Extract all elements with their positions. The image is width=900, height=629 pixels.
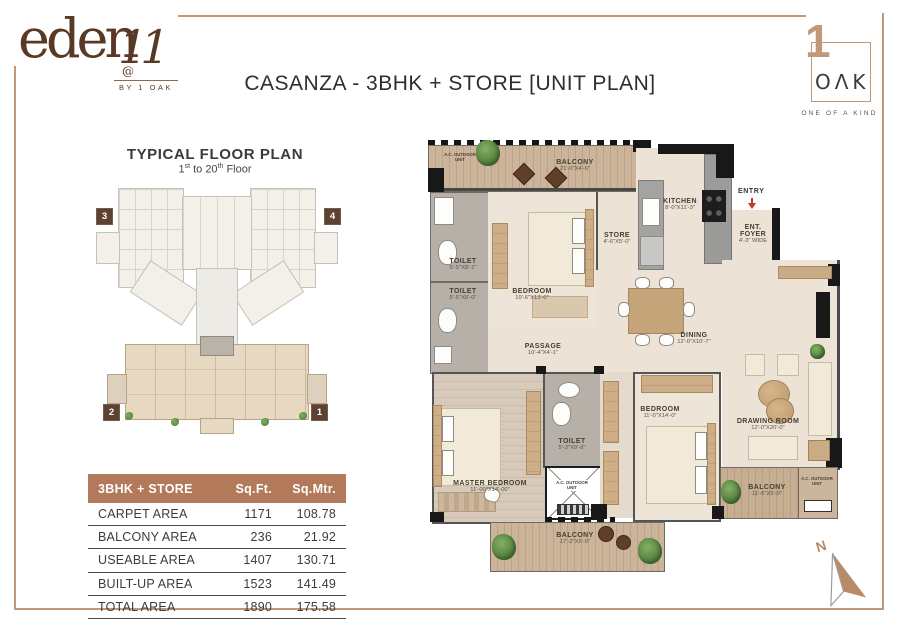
ac-outdoor-unit-label: A.C. OUTDOOR UNIT — [801, 476, 833, 487]
unit-marker-2: 2 — [103, 404, 120, 421]
room-label-toilet-1: TOILET 5'-5"X8'-1" — [449, 258, 476, 271]
table-row: BALCONY AREA 236 21.92 — [88, 526, 346, 549]
lower-tab-right — [307, 374, 327, 404]
dining-chair — [618, 302, 630, 317]
wardrobe — [493, 224, 507, 288]
oak-logo-wordmark: OΛK — [815, 70, 870, 94]
ac-grille — [804, 500, 832, 512]
wall-column — [772, 208, 780, 260]
oak-logo-tagline: ONE OF A KIND — [797, 110, 882, 117]
armchair — [777, 354, 799, 376]
shrub — [171, 418, 179, 426]
armchair — [745, 354, 765, 376]
row-label: BALCONY AREA — [98, 530, 214, 544]
frame-top — [178, 15, 806, 17]
toilet-wc — [438, 308, 457, 333]
row-sqmtr: 130.71 — [272, 553, 336, 567]
table-row: BUILT-UP AREA 1523 141.49 — [88, 573, 346, 596]
oak-logo: 1 OΛK ONE OF A KIND — [797, 18, 882, 123]
room-label-balcony-bottom: BALCONY 17'-2"X5'-0" — [556, 532, 593, 545]
table-row: TOTAL AREA 1890 175.58 — [88, 596, 346, 619]
room-label-master-bedroom: MASTER BEDROOM 11'-00"X14'-00" — [453, 480, 527, 493]
room-label-toilet-2: TOILET 5'-5"X8'-0" — [449, 288, 476, 301]
area-table-header: 3BHK + STORE Sq.Ft. Sq.Mtr. — [88, 474, 346, 503]
row-sqft: 236 — [214, 530, 272, 544]
lower-stub — [200, 418, 234, 434]
washbasin — [434, 346, 452, 364]
row-sqmtr: 141.49 — [272, 577, 336, 591]
wall-column — [716, 144, 734, 178]
side-stool — [808, 440, 830, 461]
eden-logo: eden 11 @ BY 1 OAK — [18, 8, 188, 98]
wall — [428, 188, 638, 191]
ac-grille — [557, 504, 589, 515]
row-sqmtr: 175.58 — [272, 600, 336, 614]
shower — [434, 197, 454, 225]
room-label-toilet-3: TOILET 5'-3"X9'-6" — [558, 438, 585, 451]
chaise — [808, 362, 832, 436]
unit-marker-3: 3 — [96, 208, 113, 225]
page-title: CASANZA - 3BHK + STORE [UNIT PLAN] — [230, 72, 670, 96]
row-sqmtr: 21.92 — [272, 530, 336, 544]
dining-chair — [683, 302, 695, 317]
row-label: TOTAL AREA — [98, 600, 214, 614]
brochure-page: eden 11 @ BY 1 OAK 1 OΛK ONE OF A KIND C… — [0, 0, 900, 629]
plant — [721, 480, 741, 504]
plant — [492, 534, 516, 560]
oak-logo-one: 1 — [805, 18, 831, 64]
pillow — [572, 218, 585, 244]
console-table — [778, 266, 832, 279]
wall-column — [594, 366, 604, 374]
unit-marker-4: 4 — [324, 208, 341, 225]
bed-headboard — [434, 406, 441, 486]
row-label: USEABLE AREA — [98, 553, 214, 567]
col-sqft: Sq.Ft. — [214, 482, 272, 496]
pillow — [695, 466, 707, 494]
washbasin — [558, 382, 580, 398]
row-sqft: 1171 — [214, 507, 272, 521]
room-label-store: STORE 4'-6"X5'-0" — [604, 232, 631, 245]
eden-logo-at: @ — [122, 64, 134, 78]
plant — [638, 538, 662, 564]
wardrobe — [642, 376, 712, 392]
compass-arrow-icon — [805, 541, 876, 616]
wardrobe — [604, 452, 618, 504]
dining-chair — [635, 334, 650, 346]
plant — [810, 344, 825, 359]
lower-tab-left — [107, 374, 127, 404]
col-unit-type: 3BHK + STORE — [98, 482, 214, 496]
wardrobe — [604, 382, 618, 442]
room-label-kitchen: KITCHEN 8'-0"X11'-3" — [663, 198, 697, 211]
entry-arrow-head — [748, 203, 756, 209]
refrigerator — [640, 236, 664, 266]
plant — [476, 140, 500, 166]
room-label-drawing-room: DRAWING ROOM 12'-0"X20'-0" — [737, 418, 799, 431]
entry-label: ENTRY — [738, 188, 764, 195]
pillow — [572, 248, 585, 274]
typical-floor-plan: 3 4 2 1 — [85, 168, 350, 468]
row-sqft: 1890 — [214, 600, 272, 614]
row-label: BUILT-UP AREA — [98, 577, 214, 591]
dining-chair — [659, 334, 674, 346]
typical-plan-heading: TYPICAL FLOOR PLAN — [110, 146, 320, 163]
row-label: CARPET AREA — [98, 507, 214, 521]
bed-headboard — [708, 424, 715, 504]
stove — [702, 190, 726, 222]
unit-marker-1: 1 — [311, 404, 328, 421]
room-label-bedroom-2: BEDROOM 11'-0"X14'-0" — [640, 406, 679, 419]
frame-left — [14, 66, 16, 610]
room-label-foyer: ENT. FOYER 4'-3" WIDE — [733, 224, 773, 244]
wall-column — [428, 168, 444, 192]
pillow — [695, 432, 707, 460]
shrub — [261, 418, 269, 426]
area-table: 3BHK + STORE Sq.Ft. Sq.Mtr. CARPET AREA … — [88, 474, 346, 619]
row-sqft: 1407 — [214, 553, 272, 567]
row-sqft: 1523 — [214, 577, 272, 591]
frame-right — [882, 13, 884, 610]
lower-core — [200, 336, 234, 356]
tv-unit — [816, 292, 830, 338]
wall-column — [712, 506, 724, 519]
eden-logo-byline: BY 1 OAK — [114, 80, 178, 92]
sofa — [748, 436, 798, 460]
tower-center — [182, 196, 252, 270]
kitchen-sink — [642, 198, 660, 226]
wardrobe — [527, 392, 540, 474]
pillow — [442, 416, 454, 442]
wall-column — [591, 504, 607, 519]
wall-column — [536, 366, 546, 374]
table-row: CARPET AREA 1171 108.78 — [88, 503, 346, 526]
room-label-bedroom-1: BEDROOM 10'-6"X13'-0" — [512, 288, 551, 301]
table-row: USEABLE AREA 1407 130.71 — [88, 549, 346, 572]
row-sqmtr: 108.78 — [272, 507, 336, 521]
lobby-tab-right — [314, 232, 338, 264]
col-sqmtr: Sq.Mtr. — [272, 482, 336, 496]
dining-chair — [659, 277, 674, 289]
room-label-balcony-top: BALCONY 21'-0"X4'-6" — [556, 159, 593, 172]
toilet-wc — [552, 402, 571, 426]
lobby-tab-left — [96, 232, 120, 264]
bed-headboard — [586, 210, 593, 286]
room-label-balcony-right: BALCONY 11'-6"X5'-0" — [748, 484, 785, 497]
ac-outdoor-unit-label: A.C. OUTDOOR UNIT — [555, 480, 589, 491]
dining-chair — [635, 277, 650, 289]
wall-column — [430, 512, 444, 522]
ac-outdoor-unit-label: A.C. OUTDOOR UNIT — [441, 152, 479, 163]
pillow — [442, 450, 454, 476]
room-label-dining: DINING 12'-0"X10'-7" — [677, 332, 710, 345]
north-compass: N — [800, 530, 880, 615]
dining-table — [628, 288, 684, 334]
room-label-passage: PASSAGE 10'-4"X4'-1" — [525, 343, 562, 356]
